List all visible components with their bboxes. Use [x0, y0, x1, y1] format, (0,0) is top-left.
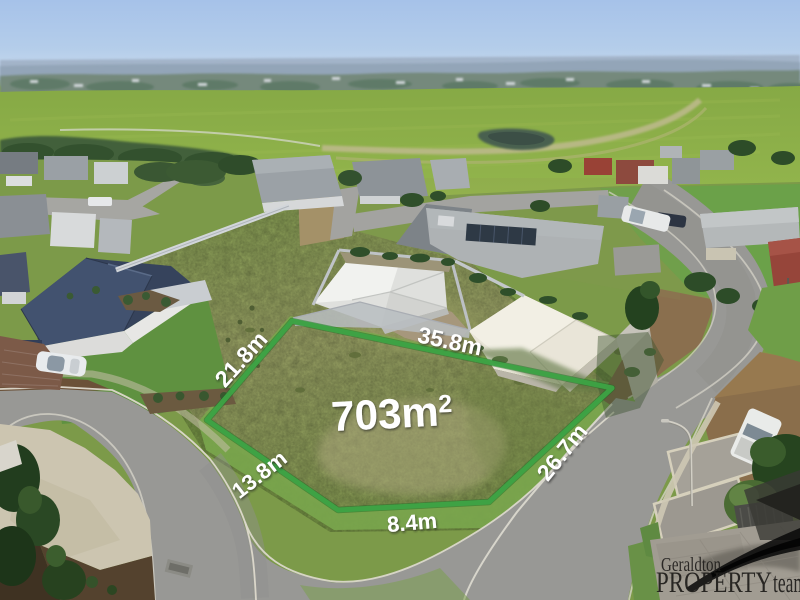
- svg-text:8.4m: 8.4m: [386, 508, 438, 537]
- svg-text:703m2: 703m2: [330, 387, 454, 440]
- svg-text:team: team: [773, 568, 800, 599]
- svg-text:PROPERTY: PROPERTY: [656, 566, 772, 599]
